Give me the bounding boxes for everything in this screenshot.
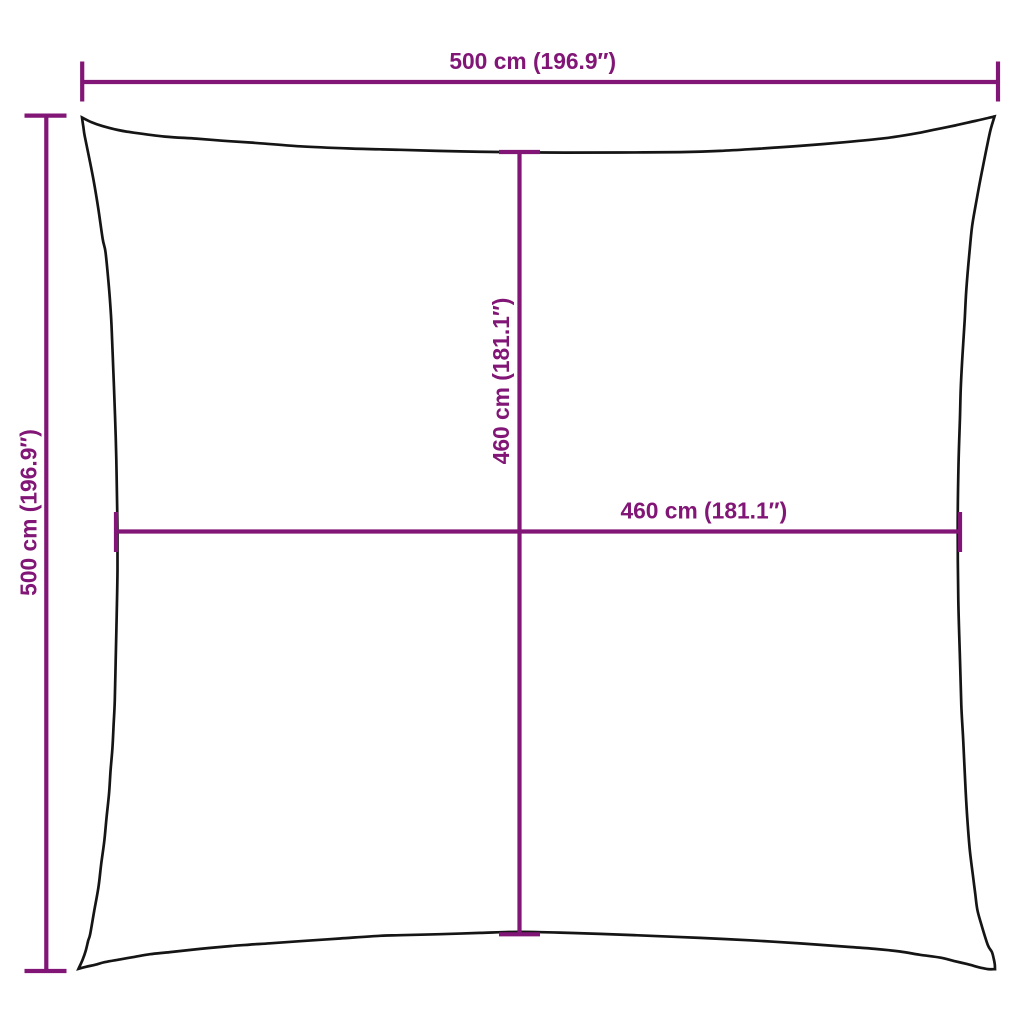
svg-text:500 cm (196.9″): 500 cm (196.9″) [449, 48, 616, 74]
svg-text:460 cm (181.1″): 460 cm (181.1″) [620, 497, 787, 523]
svg-text:500 cm (196.9″): 500 cm (196.9″) [15, 429, 41, 596]
svg-text:460 cm (181.1″): 460 cm (181.1″) [488, 298, 514, 465]
